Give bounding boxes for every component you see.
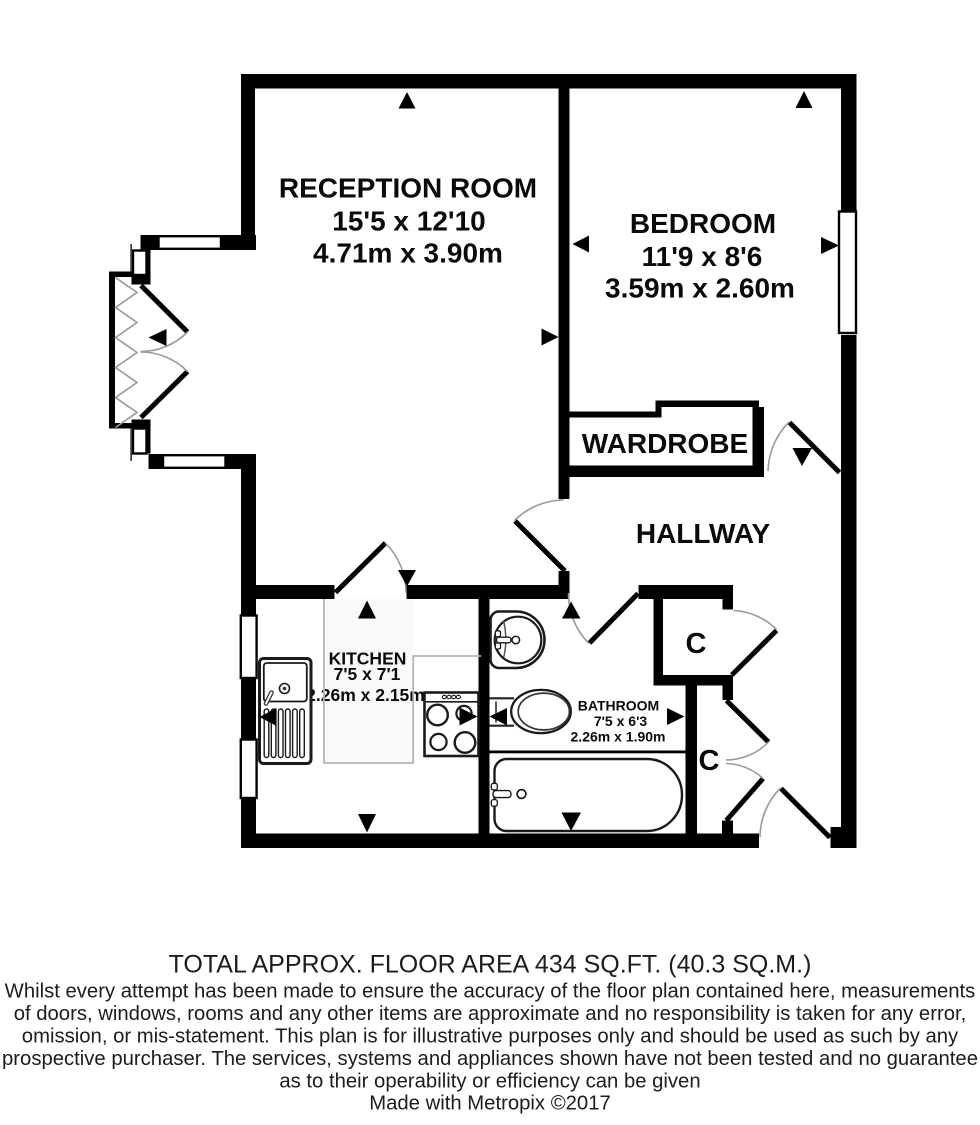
svg-text:7'5 x 7'1: 7'5 x 7'1 xyxy=(334,664,401,684)
svg-text:15'5 x 12'10: 15'5 x 12'10 xyxy=(332,206,485,237)
svg-text:HALLWAY: HALLWAY xyxy=(636,518,771,549)
svg-text:RECEPTION ROOM: RECEPTION ROOM xyxy=(279,173,537,204)
svg-text:11'9 x 8'6: 11'9 x 8'6 xyxy=(642,241,763,272)
svg-text:BATHROOM: BATHROOM xyxy=(578,697,659,713)
svg-text:7'5 x 6'3: 7'5 x 6'3 xyxy=(594,713,648,729)
svg-text:C: C xyxy=(686,628,707,660)
svg-text:prospective purchaser. The ser: prospective purchaser. The services, sys… xyxy=(2,1048,978,1070)
svg-text:Made with Metropix ©2017: Made with Metropix ©2017 xyxy=(369,1093,611,1115)
svg-text:as to their operability or eff: as to their operability or efficiency ca… xyxy=(279,1071,700,1093)
svg-text:of doors, windows, rooms and a: of doors, windows, rooms and any other i… xyxy=(14,1003,967,1025)
svg-text:TOTAL APPROX. FLOOR AREA 434 S: TOTAL APPROX. FLOOR AREA 434 SQ.FT. (40.… xyxy=(169,951,812,979)
svg-text:C: C xyxy=(699,745,720,777)
svg-text:4.71m x 3.90m: 4.71m x 3.90m xyxy=(313,238,503,269)
svg-text:WARDROBE: WARDROBE xyxy=(582,428,748,459)
svg-text:3.59m x 2.60m: 3.59m x 2.60m xyxy=(605,273,795,304)
svg-text:omission, or mis-statement. Th: omission, or mis-statement. This plan is… xyxy=(22,1026,959,1048)
svg-text:Whilst every attempt has been: Whilst every attempt has been made to en… xyxy=(5,981,976,1003)
svg-text:2.26m x 1.90m: 2.26m x 1.90m xyxy=(571,729,666,745)
svg-text:BEDROOM: BEDROOM xyxy=(630,208,776,239)
